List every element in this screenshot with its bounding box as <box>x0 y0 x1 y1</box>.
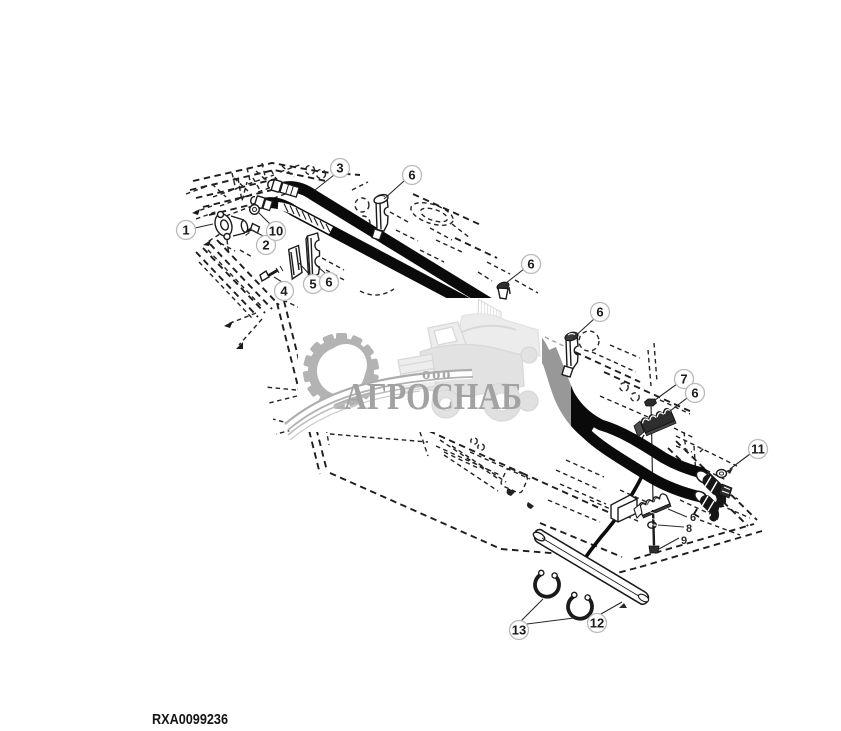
svg-text:6: 6 <box>408 168 415 183</box>
svg-text:2: 2 <box>262 238 269 253</box>
svg-text:10: 10 <box>269 224 283 239</box>
svg-text:11: 11 <box>751 442 765 457</box>
svg-text:5: 5 <box>309 277 316 292</box>
svg-text:6: 6 <box>596 305 603 320</box>
svg-text:4: 4 <box>280 284 288 299</box>
svg-text:RXA0099236: RXA0099236 <box>152 711 228 728</box>
svg-text:13: 13 <box>512 623 526 638</box>
svg-text:3: 3 <box>336 161 343 176</box>
svg-text:12: 12 <box>590 616 604 631</box>
svg-text:9: 9 <box>681 535 687 547</box>
svg-text:7: 7 <box>680 372 687 387</box>
svg-text:6: 6 <box>527 257 534 272</box>
svg-text:8: 8 <box>686 523 692 535</box>
svg-text:1: 1 <box>182 223 189 238</box>
svg-text:6: 6 <box>691 386 698 401</box>
svg-text:6: 6 <box>325 275 332 290</box>
svg-text:АГРОСНАБ: АГРОСНАБ <box>344 376 522 418</box>
